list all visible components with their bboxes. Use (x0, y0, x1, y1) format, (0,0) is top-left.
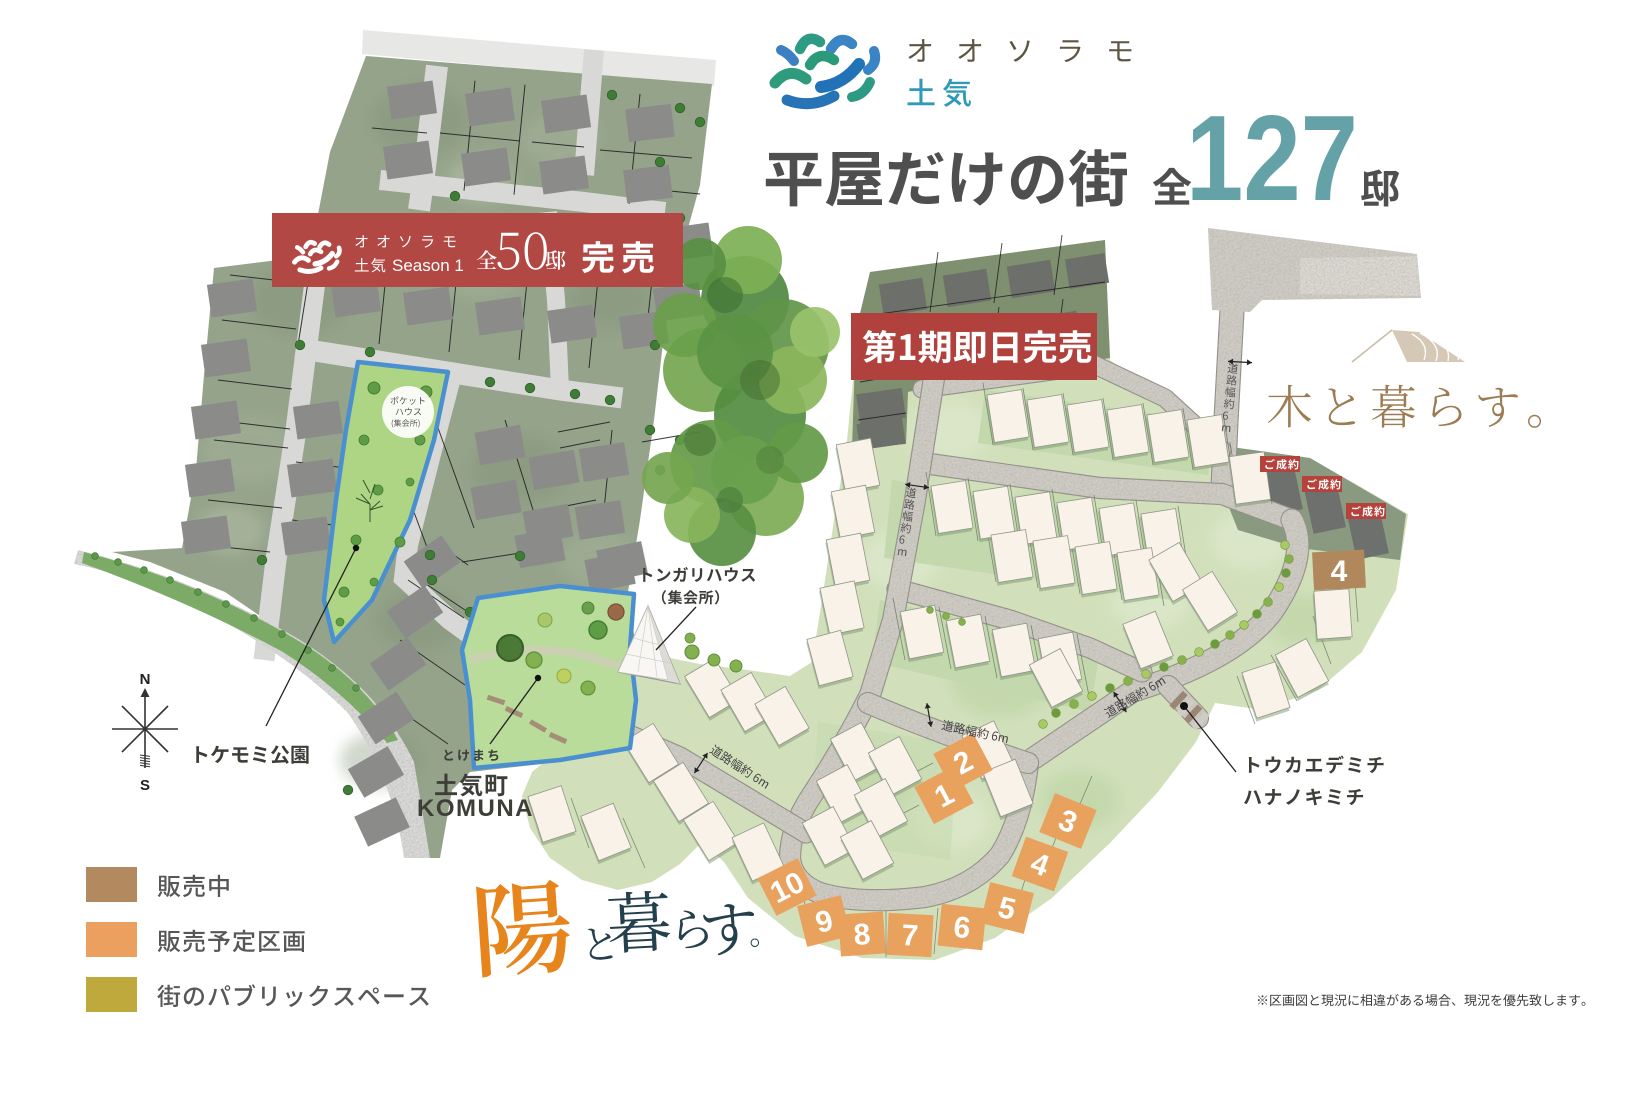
svg-text:Season 1: Season 1 (392, 256, 464, 275)
svg-text:127: 127 (1186, 90, 1358, 226)
svg-text:6: 6 (952, 911, 972, 946)
svg-text:8: 8 (853, 918, 872, 952)
svg-text:S: S (140, 777, 150, 794)
svg-text:7: 7 (901, 919, 919, 953)
svg-text:4: 4 (1331, 555, 1348, 588)
svg-text:KOMUNA: KOMUNA (417, 795, 534, 822)
svg-text:N: N (140, 671, 151, 688)
